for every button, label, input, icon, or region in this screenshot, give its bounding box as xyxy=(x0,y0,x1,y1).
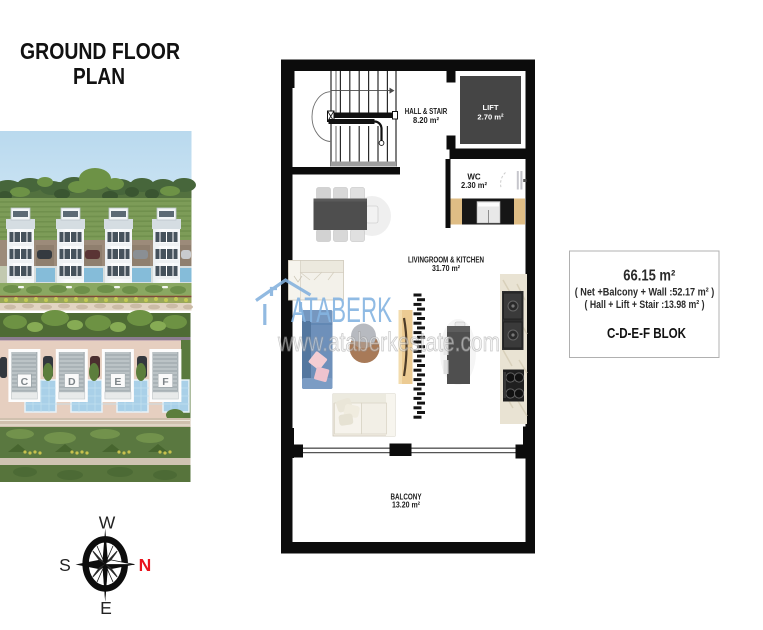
svg-text:66.15 m²: 66.15 m² xyxy=(623,268,675,285)
svg-text:C-D-E-F BLOK: C-D-E-F BLOK xyxy=(607,325,686,342)
svg-text:8.20 m²: 8.20 m² xyxy=(413,116,439,125)
svg-text:E: E xyxy=(100,598,112,618)
svg-text:( Hall + Lift + Stair :13.98 m: ( Hall + Lift + Stair :13.98 m² ) xyxy=(585,299,705,311)
svg-text:PLAN: PLAN xyxy=(73,63,125,89)
svg-text:D: D xyxy=(68,376,76,388)
svg-text:F: F xyxy=(162,376,169,388)
svg-text:www.ataberkestate.com: www.ataberkestate.com xyxy=(277,327,500,357)
svg-text:2.30 m²: 2.30 m² xyxy=(461,181,487,190)
svg-text:GROUND FLOOR: GROUND FLOOR xyxy=(20,38,180,64)
svg-text:( Net +Balcony + Wall :52.17 m: ( Net +Balcony + Wall :52.17 m² ) xyxy=(575,287,715,299)
svg-text:13.20 m²: 13.20 m² xyxy=(392,501,420,510)
svg-text:W: W xyxy=(99,513,116,533)
svg-text:S: S xyxy=(59,555,71,575)
svg-text:C: C xyxy=(21,376,29,388)
svg-text:HALL & STAIR: HALL & STAIR xyxy=(405,107,448,116)
svg-text:N: N xyxy=(139,555,152,575)
svg-text:E: E xyxy=(114,376,121,388)
svg-text:LIFT: LIFT xyxy=(482,103,498,112)
svg-text:2.70 m²: 2.70 m² xyxy=(477,113,504,122)
svg-text:31.70 m²: 31.70 m² xyxy=(432,264,460,273)
svg-text:ATABERK: ATABERK xyxy=(291,291,392,330)
